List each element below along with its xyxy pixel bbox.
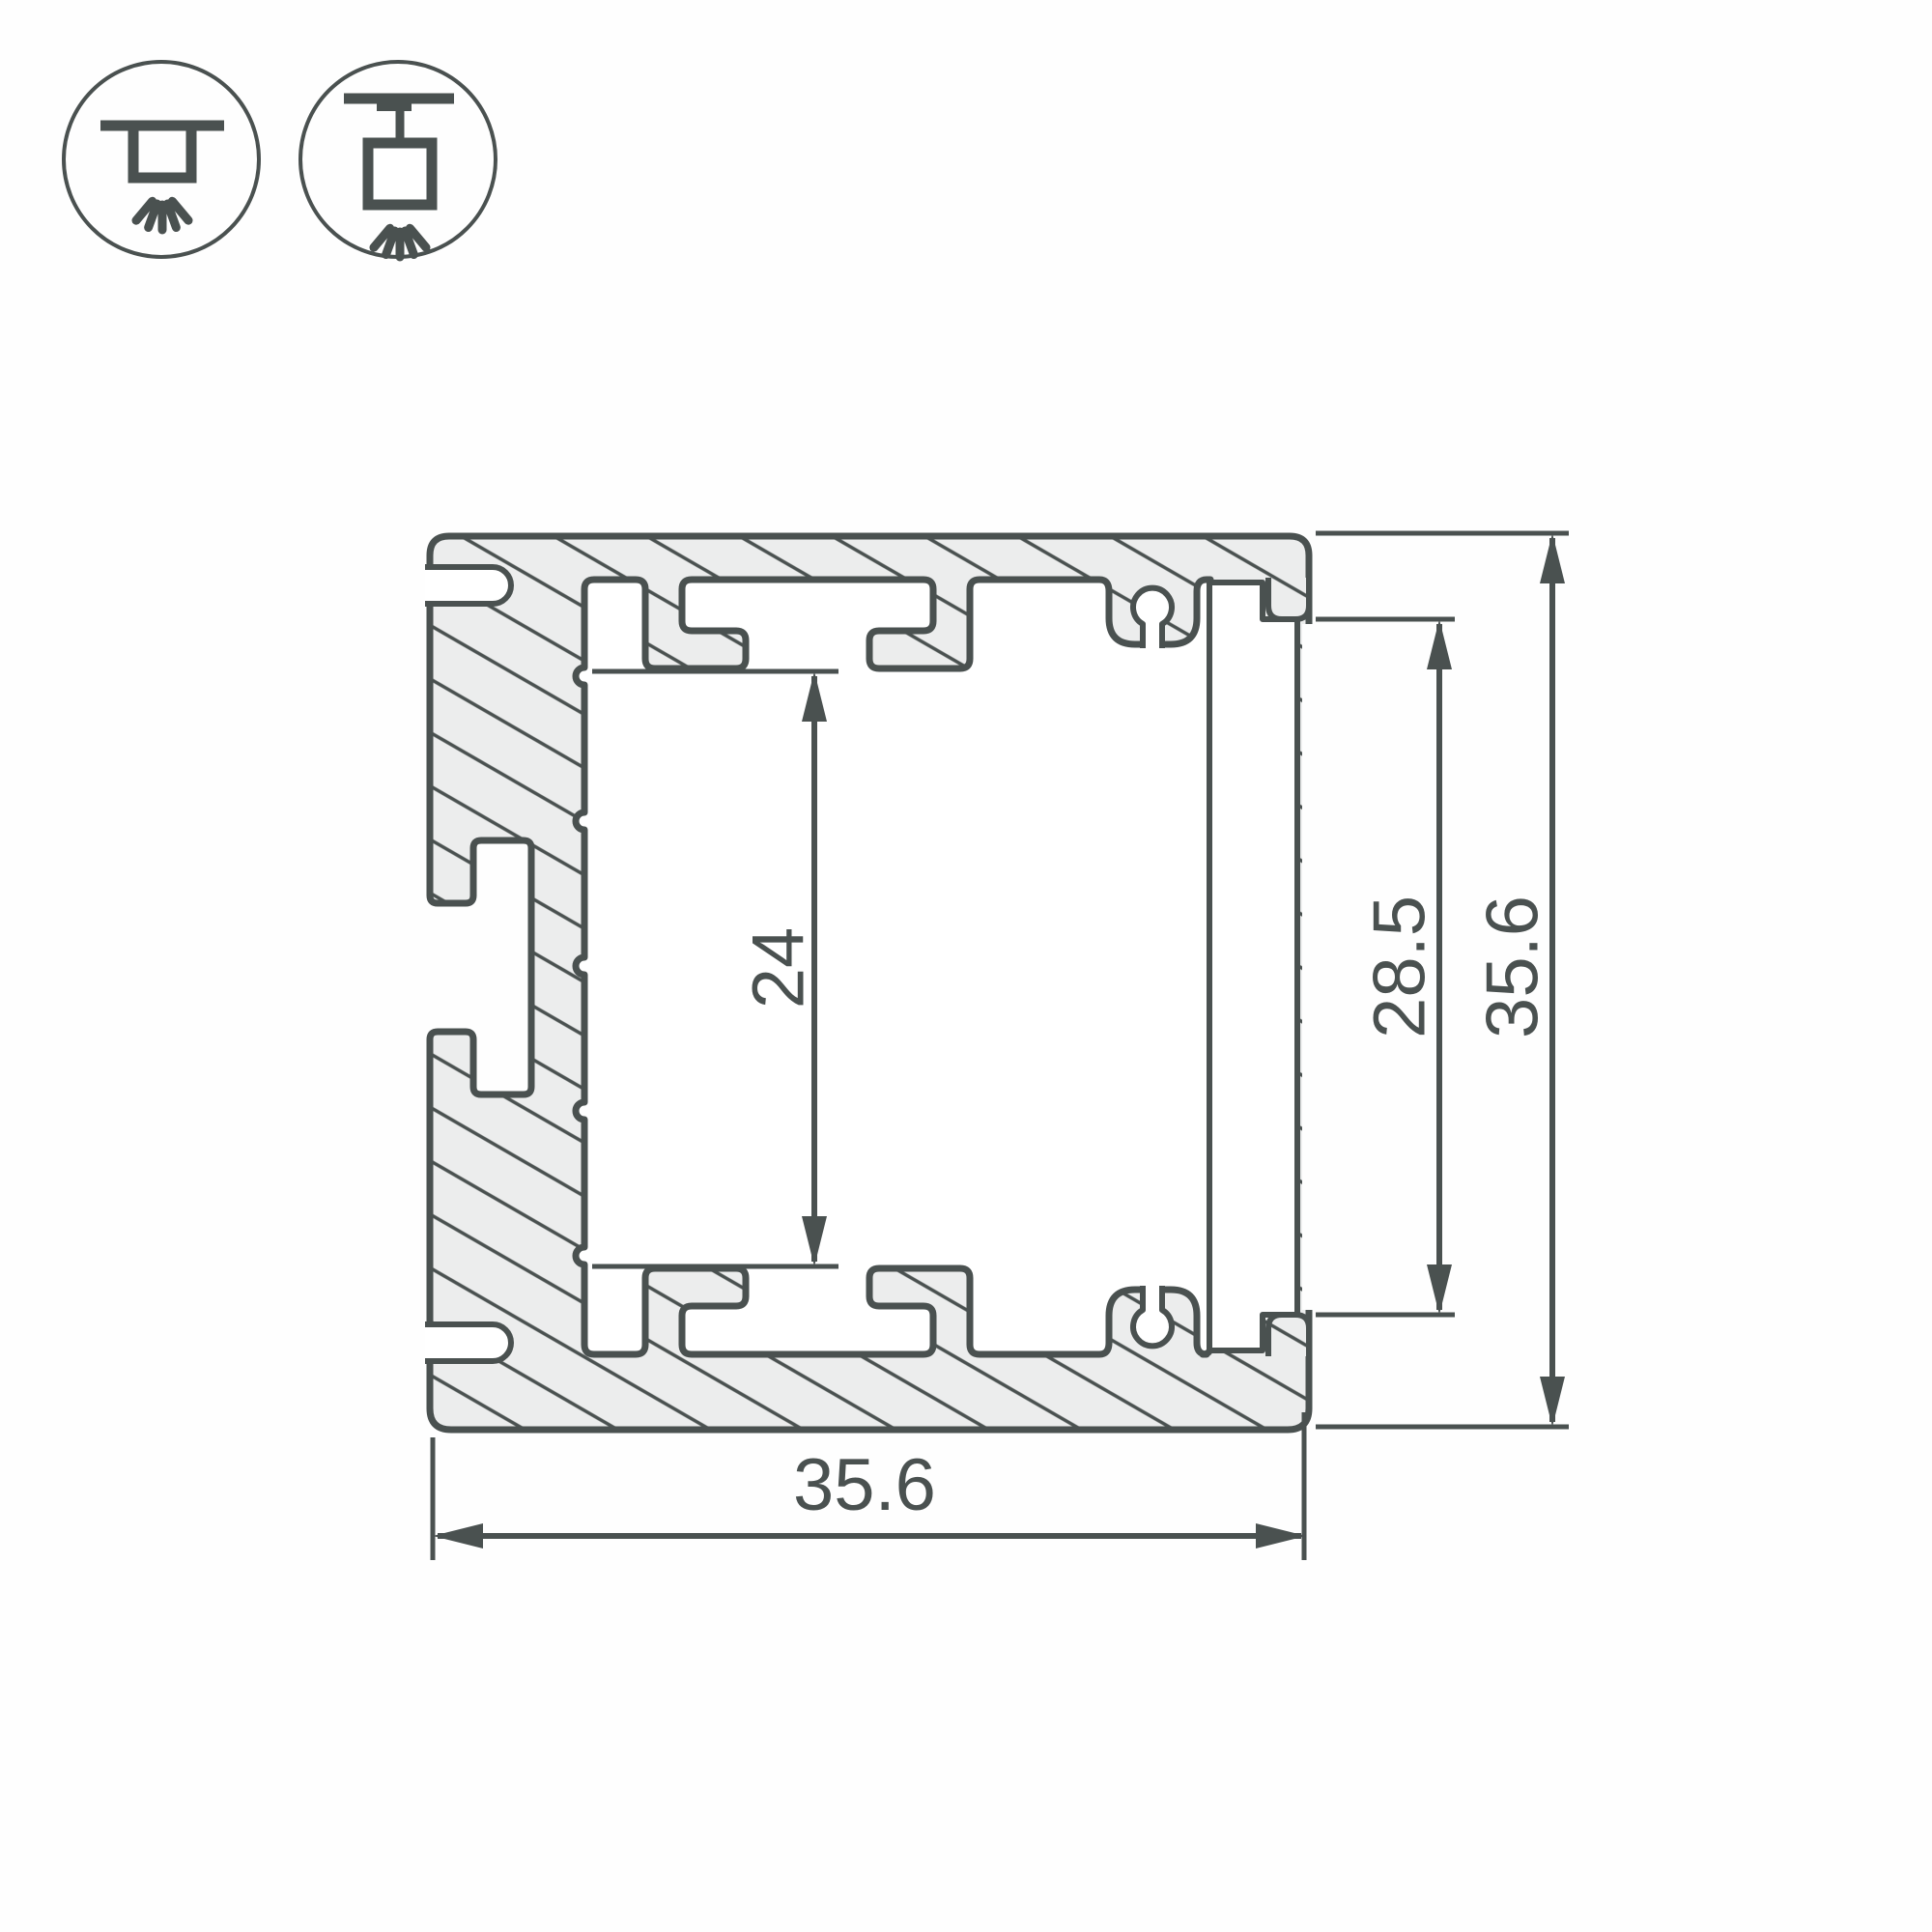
arrowhead-down [1427, 1264, 1452, 1315]
dimension-label-opening-height: 28.5 [1359, 895, 1441, 1038]
arrowhead-down [1540, 1377, 1565, 1427]
retaining-lip-top [1268, 578, 1309, 619]
dimension-overall-width: 35.6 [433, 1444, 1306, 1548]
retaining-lip-bottom [1268, 1315, 1309, 1356]
screw-port-left-bottom [425, 1324, 511, 1361]
diffuser-plate [1209, 582, 1297, 1350]
dimension-label-overall-width: 35.6 [793, 1444, 936, 1526]
fixture-box [368, 143, 432, 205]
dimension-overall-height: 35.6 [1472, 533, 1566, 1427]
arrowhead-left [433, 1523, 483, 1548]
profile-cross-section [425, 536, 1325, 1430]
technical-drawing: 24 28.5 35.6 35.6 [0, 0, 1932, 1932]
dimension-label-inner-height: 24 [738, 927, 820, 1009]
light-rays [136, 201, 188, 230]
arrowhead-up [1540, 533, 1565, 583]
arrowhead-right [1256, 1523, 1306, 1548]
mount-type-icons [64, 62, 496, 257]
surface-mount-icon [64, 62, 259, 257]
right-edge-mask [1302, 624, 1325, 1310]
canopy [377, 99, 412, 111]
technical-drawing-page: 24 28.5 35.6 35.6 [0, 0, 1932, 1932]
pendant-mount-icon [300, 62, 496, 257]
dimension-opening-height: 28.5 [1359, 619, 1453, 1315]
screw-port-left-top [425, 567, 511, 604]
fixture-box [133, 126, 191, 178]
light-rays [374, 228, 426, 257]
arrowhead-up [1427, 619, 1452, 669]
led-channel-cavity [576, 580, 1210, 1354]
dimension-label-overall-height: 35.6 [1472, 895, 1554, 1038]
